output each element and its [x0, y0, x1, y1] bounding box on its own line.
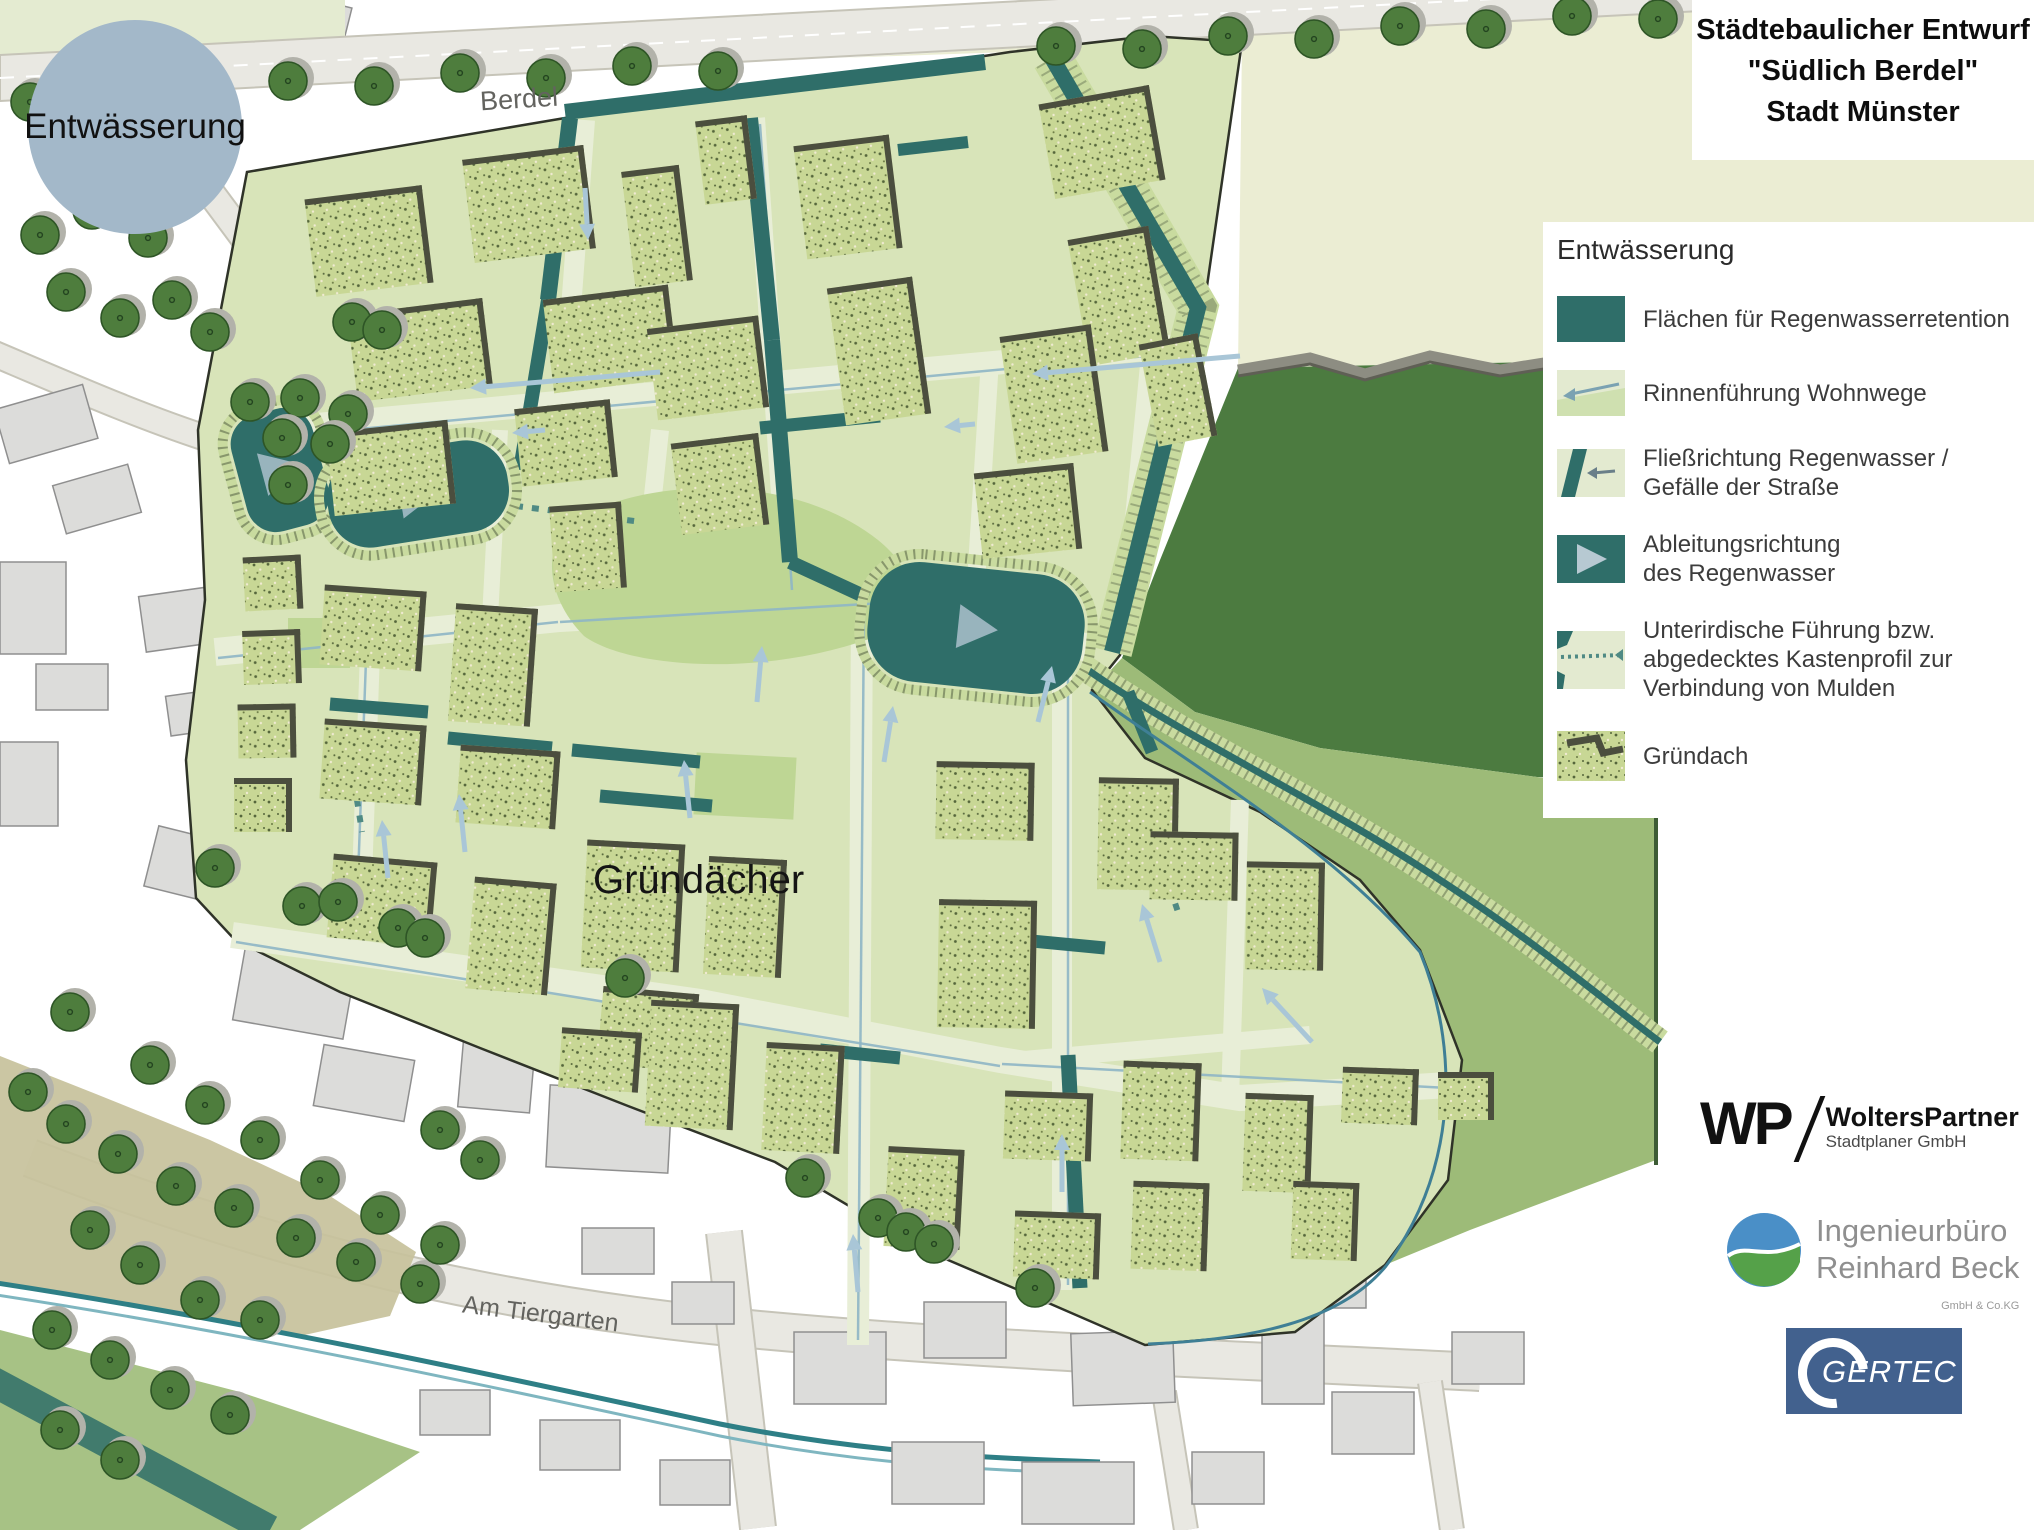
green-roof-building [974, 463, 1082, 559]
legend-label: Fließrichtung Regenwasser / [1643, 444, 1948, 473]
green-roof-building [1245, 861, 1325, 970]
legend-label: Unterirdische Führung bzw. [1643, 616, 1953, 645]
plan-title-line1: Städtebaulicher Entwurf [1692, 10, 2034, 51]
green-roof-building [455, 745, 560, 830]
green-roof-building [238, 703, 297, 758]
green-roof-building [243, 555, 304, 612]
channel-path-swatch-icon [1557, 370, 1625, 416]
legend: Entwässerung Flächen für Regenwasserrete… [1543, 222, 2034, 818]
legend-item-green-roof: Gründach [1557, 731, 2034, 781]
gertec-logo: GERTEC [1786, 1328, 1962, 1414]
green-roofs-label: Gründächer [593, 858, 804, 903]
street-label-berdel: Berdel [479, 82, 559, 118]
green-roof-building [304, 185, 433, 297]
green-roof-building [234, 778, 292, 832]
retention-area-swatch-icon [1557, 296, 1625, 342]
green-roof-building [1013, 1211, 1101, 1280]
plan-title-line3: Stadt Münster [1692, 92, 2034, 133]
beck-subtitle: GmbH & Co.KG [1816, 1288, 2019, 1325]
drainage-badge: Entwässerung [28, 20, 242, 234]
beck-globe-icon [1726, 1212, 1802, 1288]
discharge-direction-swatch-icon [1557, 535, 1625, 583]
green-roof-building [647, 316, 769, 421]
green-roof-building [793, 135, 902, 260]
flow-direction-swatch-icon [1557, 449, 1625, 497]
legend-label: Gefälle der Straße [1643, 473, 1948, 502]
green-roof-building [671, 433, 770, 535]
legend-label: Verbindung von Mulden [1643, 674, 1953, 703]
beck-line2: Reinhard Beck [1816, 1249, 2019, 1286]
legend-title: Entwässerung [1557, 234, 2034, 266]
green-roof-building [242, 629, 302, 685]
green-roof-building [514, 399, 618, 487]
wp-initials: WP [1700, 1094, 1791, 1154]
legend-item-flow-direction: Fließrichtung Regenwasser / Gefälle der … [1557, 444, 2034, 502]
wp-slash-icon [1793, 1096, 1825, 1162]
green-roof-building [1438, 1072, 1494, 1120]
reinhard-beck-logo: Ingenieurbüro Reinhard Beck GmbH & Co.KG [1726, 1212, 2019, 1325]
green-roof-building [645, 1000, 739, 1130]
legend-label: Flächen für Regenwasserretention [1643, 305, 2010, 334]
wp-name: WoltersPartner [1826, 1094, 2019, 1132]
green-roof-building [448, 603, 538, 726]
green-roof-building [1003, 1090, 1093, 1161]
green-roof-building [935, 761, 1034, 841]
gertec-name: GERTEC [1822, 1354, 1957, 1390]
beck-line1: Ingenieurbüro [1816, 1212, 2019, 1249]
green-roof-building [1149, 831, 1238, 901]
green-roof-building [695, 115, 757, 205]
legend-label: Gründach [1643, 742, 1748, 771]
wp-subtitle: Stadtplaner GmbH [1826, 1132, 2019, 1152]
legend-label: abgedecktes Kastenprofil zur [1643, 645, 1953, 674]
plan-title: Städtebaulicher Entwurf "Südlich Berdel"… [1692, 0, 2034, 160]
green-roof-building [761, 1042, 845, 1154]
green-roof-building [462, 145, 596, 263]
green-roof-building [1291, 1181, 1360, 1261]
legend-label: Rinnenführung Wohnwege [1643, 379, 1927, 408]
green-roof-building [1120, 1061, 1201, 1162]
green-roof-building [1242, 1093, 1313, 1193]
legend-item-channel-path: Rinnenführung Wohnwege [1557, 370, 2034, 416]
green-roof-building [1341, 1067, 1419, 1126]
green-roof-building [1130, 1181, 1209, 1272]
green-roof-building [1039, 85, 1166, 199]
wolterspartner-logo: WP WoltersPartner Stadtplaner GmbH [1700, 1094, 2019, 1162]
green-roof-building [319, 585, 426, 672]
plan-title-line2: "Südlich Berdel" [1692, 51, 2034, 92]
legend-item-underground-duct: Unterirdische Führung bzw. abgedecktes K… [1557, 616, 2034, 703]
green-roof-building [465, 877, 556, 996]
green-roof-building [549, 502, 627, 593]
green-roof-building [937, 899, 1037, 1029]
legend-label: des Regenwasser [1643, 559, 1840, 588]
legend-label: Ableitungsrichtung [1643, 530, 1840, 559]
green-roof-swatch-icon [1557, 731, 1625, 781]
legend-item-discharge-direction: Ableitungsrichtung des Regenwasser [1557, 530, 2034, 588]
drainage-badge-label: Entwässerung [24, 107, 246, 147]
legend-item-retention: Flächen für Regenwasserretention [1557, 296, 2034, 342]
green-roof-building [319, 719, 426, 806]
green-roof-building [558, 1027, 642, 1092]
underground-duct-swatch-icon [1557, 631, 1625, 689]
green-roof-building [1000, 324, 1109, 464]
